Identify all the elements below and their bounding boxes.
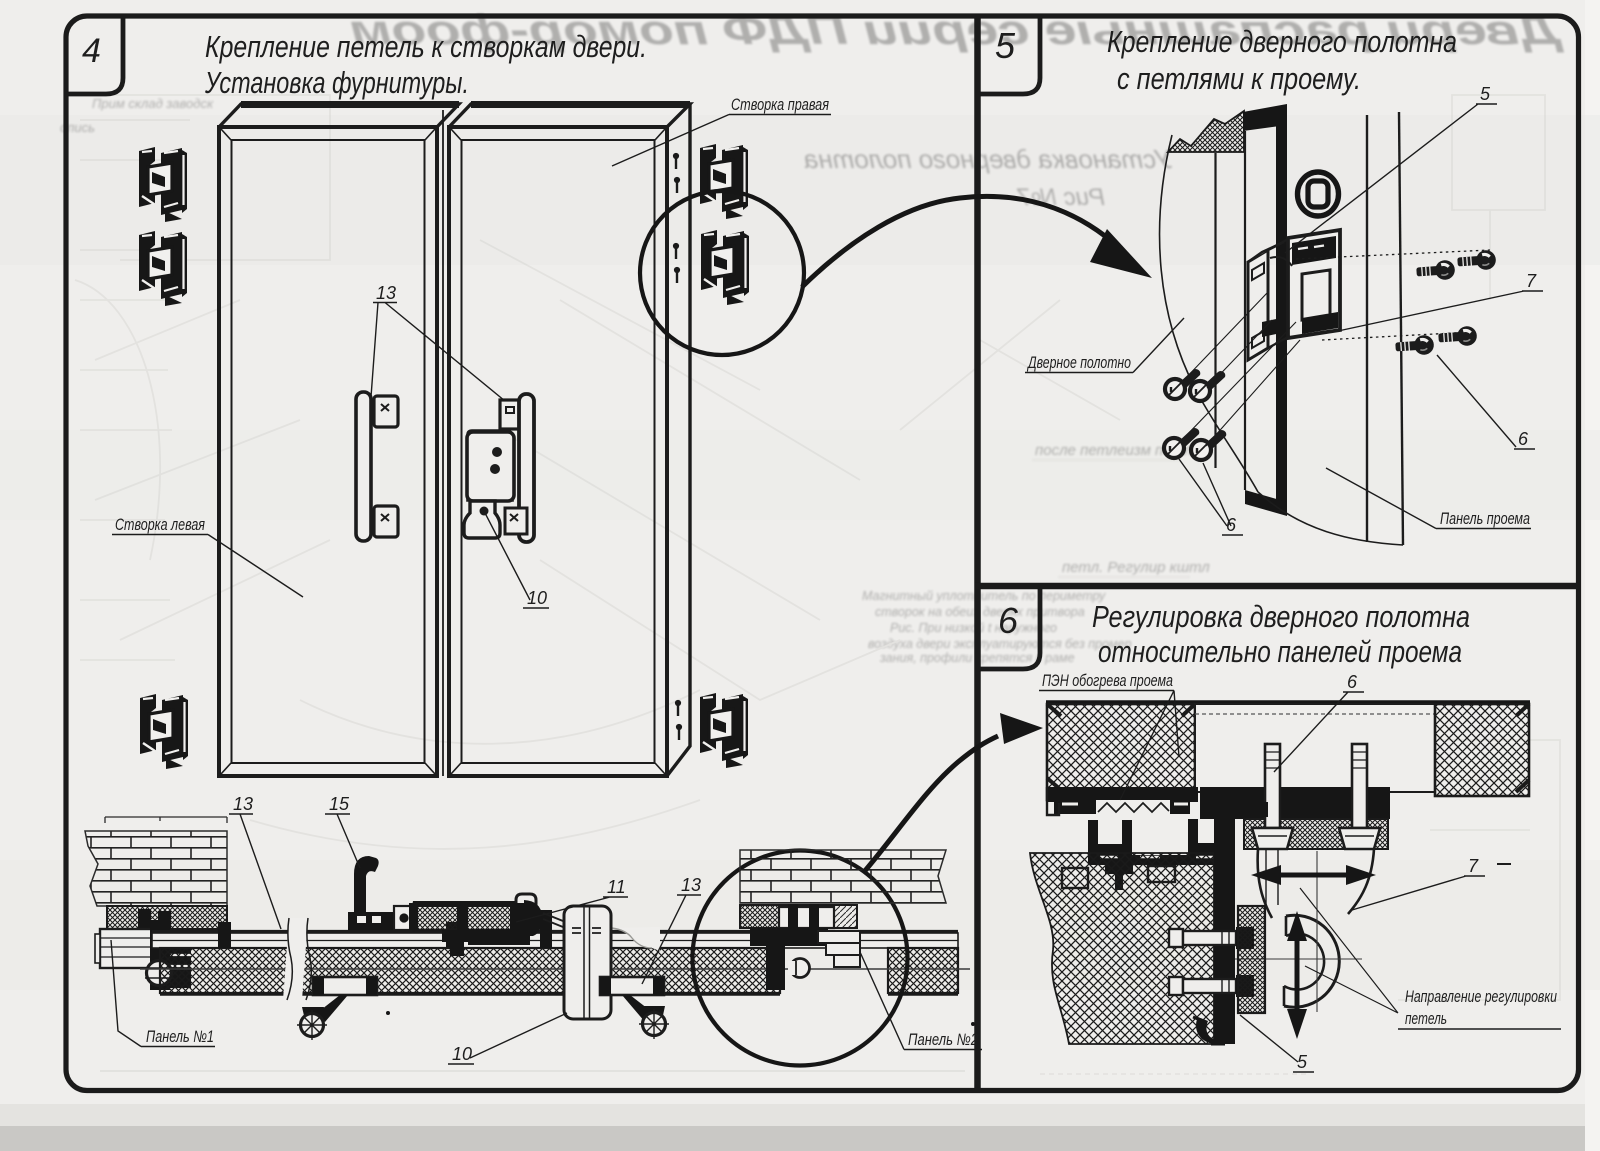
svg-text:6: 6 xyxy=(1347,672,1358,692)
svg-text:Створка левая: Створка левая xyxy=(115,516,205,534)
svg-text:11: 11 xyxy=(607,877,626,897)
svg-text:Крепление петель к створкам дв: Крепление петель к створкам двери. xyxy=(205,29,647,64)
svg-text:6: 6 xyxy=(1518,429,1529,449)
svg-text:Установка дверного полотна: Установка дверного полотна xyxy=(804,144,1173,174)
svg-text:Прим склад заводск: Прим склад заводск xyxy=(92,96,214,111)
svg-text:Регулировка дверного полотна: Регулировка дверного полотна xyxy=(1092,599,1470,634)
svg-text:Створка правая: Створка правая xyxy=(731,96,829,114)
svg-text:7: 7 xyxy=(1468,856,1479,876)
svg-text:6: 6 xyxy=(998,600,1019,641)
svg-text:5: 5 xyxy=(1297,1052,1308,1072)
svg-text:10: 10 xyxy=(527,588,547,608)
svg-text:Панель №1: Панель №1 xyxy=(146,1028,214,1046)
svg-text:Установка фурнитуры.: Установка фурнитуры. xyxy=(204,65,469,100)
svg-text:13: 13 xyxy=(233,794,253,814)
svg-text:с петлями к проему.: с петлями к проему. xyxy=(1117,61,1361,96)
svg-text:13: 13 xyxy=(681,875,701,895)
svg-text:ПЭН обогрева проема: ПЭН обогрева проема xyxy=(1042,672,1173,690)
svg-text:Рис. При низкой t наружного: Рис. При низкой t наружного xyxy=(890,621,1057,635)
svg-text:5: 5 xyxy=(1480,84,1491,104)
svg-text:7: 7 xyxy=(1526,271,1537,291)
svg-text:Дверное полотно: Дверное полотно xyxy=(1027,354,1131,372)
svg-text:Рис №7: Рис №7 xyxy=(1016,184,1105,211)
svg-text:Крепление дверного полотна: Крепление дверного полотна xyxy=(1107,24,1457,59)
svg-text:13: 13 xyxy=(376,283,396,303)
svg-text:5: 5 xyxy=(995,25,1016,66)
svg-text:10: 10 xyxy=(452,1044,472,1064)
svg-text:Магнитный уплотнитель по перим: Магнитный уплотнитель по периметру xyxy=(862,589,1106,603)
svg-text:Панель проема: Панель проема xyxy=(1440,510,1530,528)
svg-text:петель: петель xyxy=(1405,1010,1447,1028)
svg-text:4: 4 xyxy=(82,32,101,70)
svg-text:Панель №2: Панель №2 xyxy=(908,1031,978,1049)
svg-text:Направление регулировки: Направление регулировки xyxy=(1405,988,1557,1006)
svg-text:относительно панелей проема: относительно панелей проема xyxy=(1098,634,1462,669)
svg-text:15: 15 xyxy=(329,794,350,814)
svg-text:петл. Регулир кштл: петл. Регулир кштл xyxy=(1062,559,1210,576)
